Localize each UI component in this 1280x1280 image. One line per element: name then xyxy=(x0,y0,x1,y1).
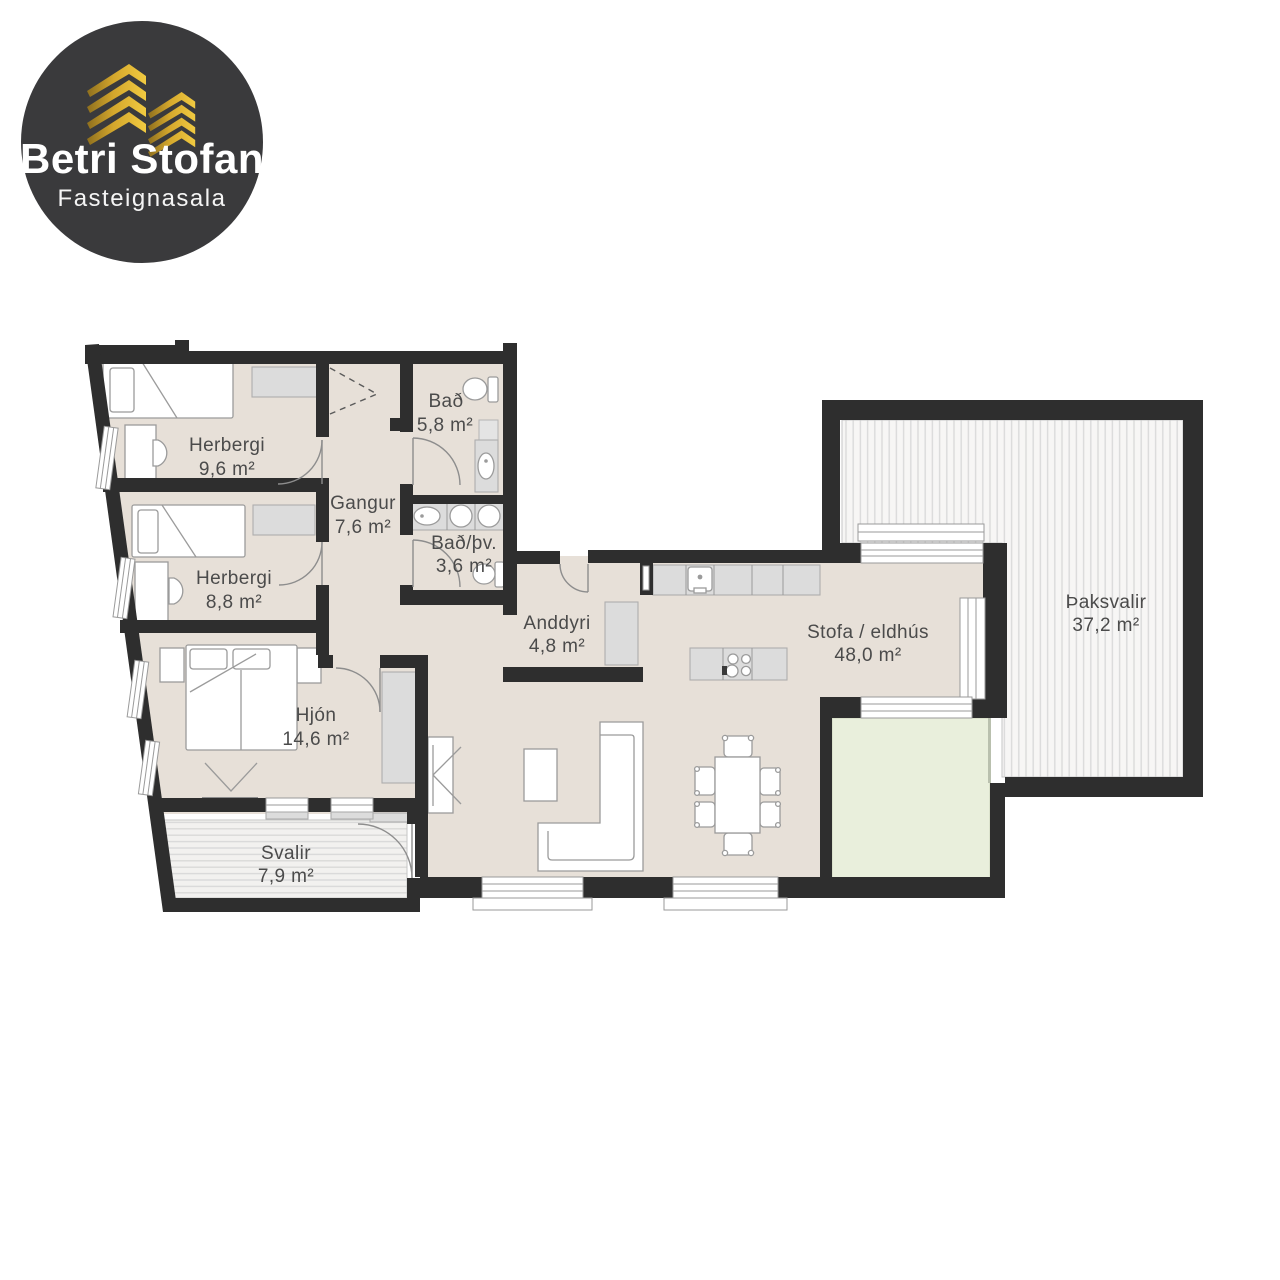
sidelight-window xyxy=(643,566,649,590)
window xyxy=(266,798,308,819)
svg-text:Hjón: Hjón xyxy=(296,705,337,726)
svg-text:3,6 m²: 3,6 m² xyxy=(436,556,492,577)
toilet-icon xyxy=(463,377,498,402)
closet-icon xyxy=(605,602,638,665)
floor-plan-canvas: Betri Stofan Fasteignasala xyxy=(0,0,1280,1280)
svg-text:9,6 m²: 9,6 m² xyxy=(199,459,255,480)
svg-text:48,0 m²: 48,0 m² xyxy=(834,645,901,666)
svg-text:Bað: Bað xyxy=(428,391,463,412)
window xyxy=(331,798,373,819)
svg-text:7,6 m²: 7,6 m² xyxy=(335,517,391,538)
bed-icon xyxy=(103,362,233,418)
window xyxy=(664,877,787,910)
logo-title: Betri Stofan xyxy=(20,135,264,182)
svg-text:Stofa / eldhús: Stofa / eldhús xyxy=(807,622,929,643)
svg-text:Svalir: Svalir xyxy=(261,843,311,864)
window xyxy=(858,524,984,563)
window xyxy=(960,598,985,699)
closet-icon xyxy=(252,367,317,397)
svg-text:Þaksvalir: Þaksvalir xyxy=(1066,592,1147,613)
svg-text:4,8 m²: 4,8 m² xyxy=(529,636,585,657)
svg-text:Herbergi: Herbergi xyxy=(196,568,272,589)
bed-icon xyxy=(132,505,245,557)
floor-plan-page: Betri Stofan Fasteignasala xyxy=(0,0,1280,1280)
wardrobe-icon xyxy=(382,672,418,783)
svg-text:Anddyri: Anddyri xyxy=(523,613,590,634)
svg-text:Gangur: Gangur xyxy=(330,493,396,514)
window xyxy=(861,697,972,718)
svg-text:14,6 m²: 14,6 m² xyxy=(282,729,349,750)
green-area xyxy=(832,718,990,878)
company-logo: Betri Stofan Fasteignasala xyxy=(20,21,264,263)
svg-text:Bað/þv.: Bað/þv. xyxy=(431,533,497,554)
coffee-table-icon xyxy=(524,749,557,801)
laundry-counter-icon xyxy=(408,502,505,530)
door-sill xyxy=(370,813,412,822)
closet-icon xyxy=(253,505,315,535)
kitchen-counter-icon xyxy=(653,565,820,595)
green-area-glass-wall xyxy=(988,718,991,783)
svg-text:5,8 m²: 5,8 m² xyxy=(417,415,473,436)
kitchen-island-icon xyxy=(690,648,787,680)
svg-text:37,2 m²: 37,2 m² xyxy=(1072,615,1139,636)
svg-text:Herbergi: Herbergi xyxy=(189,435,265,456)
logo-subtitle: Fasteignasala xyxy=(58,185,227,212)
svg-text:7,9 m²: 7,9 m² xyxy=(258,866,314,887)
window xyxy=(473,877,592,910)
svg-text:8,8 m²: 8,8 m² xyxy=(206,592,262,613)
